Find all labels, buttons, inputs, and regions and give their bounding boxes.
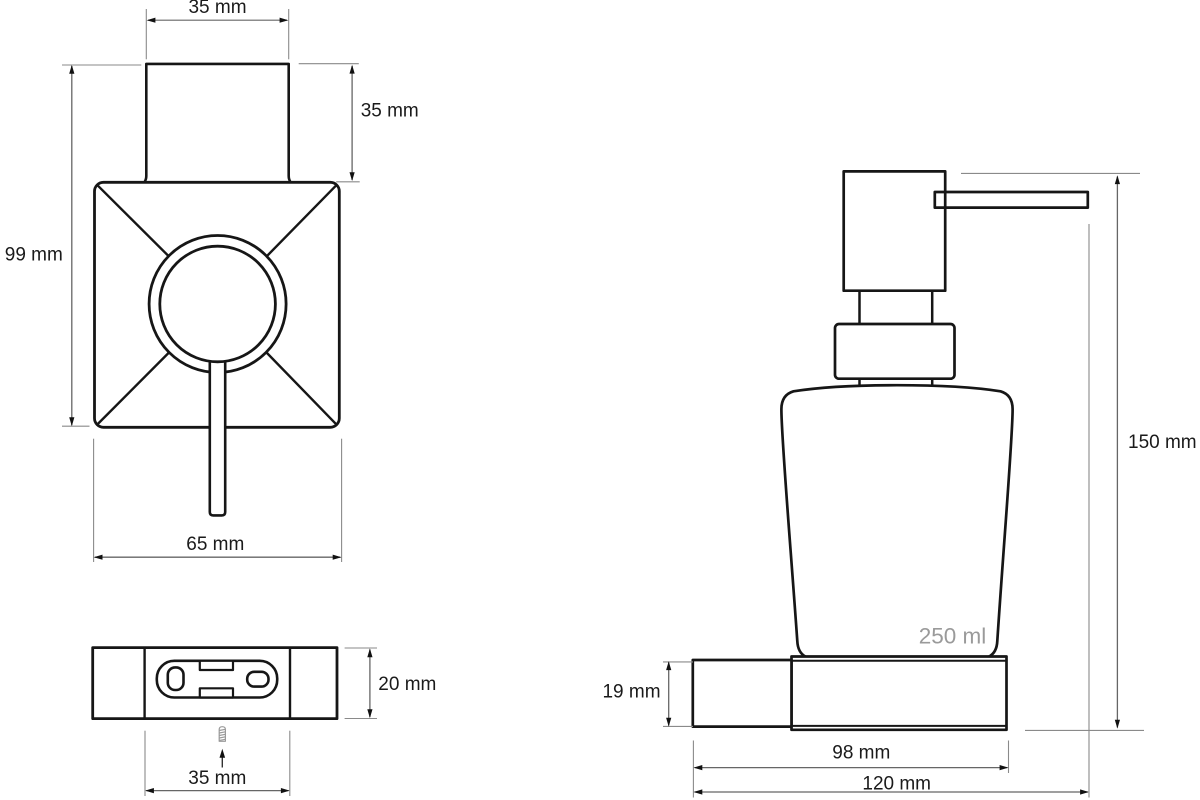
- svg-text:65 mm: 65 mm: [186, 534, 244, 555]
- svg-text:150 mm: 150 mm: [1128, 432, 1197, 453]
- svg-text:250 ml: 250 ml: [919, 624, 987, 649]
- svg-text:35 mm: 35 mm: [188, 0, 246, 18]
- svg-text:120 mm: 120 mm: [862, 773, 931, 794]
- svg-text:99 mm: 99 mm: [5, 245, 63, 266]
- svg-text:35 mm: 35 mm: [361, 101, 419, 122]
- svg-text:35 mm: 35 mm: [188, 768, 246, 789]
- svg-text:19 mm: 19 mm: [602, 681, 660, 702]
- svg-text:20 mm: 20 mm: [378, 674, 436, 695]
- svg-text:98 mm: 98 mm: [832, 743, 890, 764]
